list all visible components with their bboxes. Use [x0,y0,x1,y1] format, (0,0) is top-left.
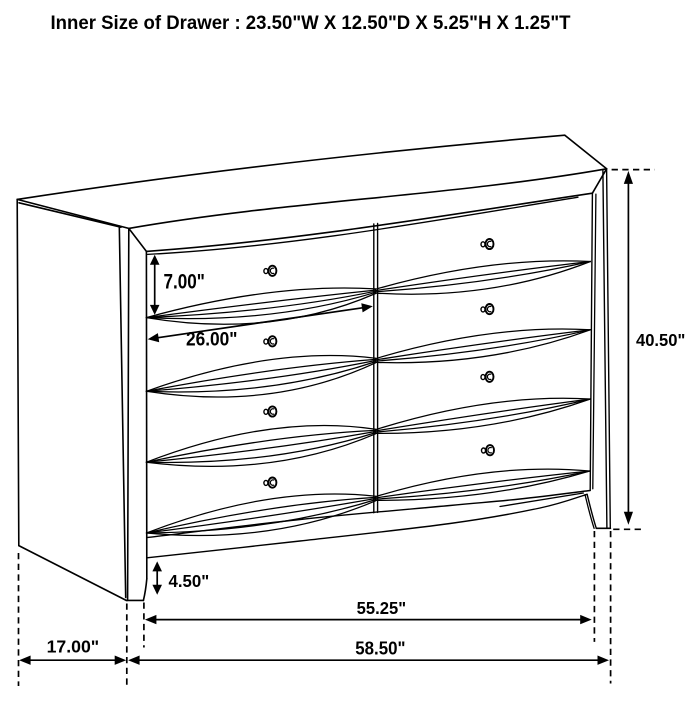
svg-text:7.00": 7.00" [164,271,205,294]
svg-text:58.50": 58.50" [355,638,405,658]
svg-text:55.25": 55.25" [357,598,407,618]
svg-text:17.00": 17.00" [47,637,100,657]
svg-text:40.50": 40.50" [636,330,685,350]
svg-text:4.50": 4.50" [169,571,210,591]
svg-text:Inner Size of Drawer : 23.50"W: Inner Size of Drawer : 23.50"W X 12.50"D… [51,13,571,34]
svg-text:26.00": 26.00" [186,329,238,350]
